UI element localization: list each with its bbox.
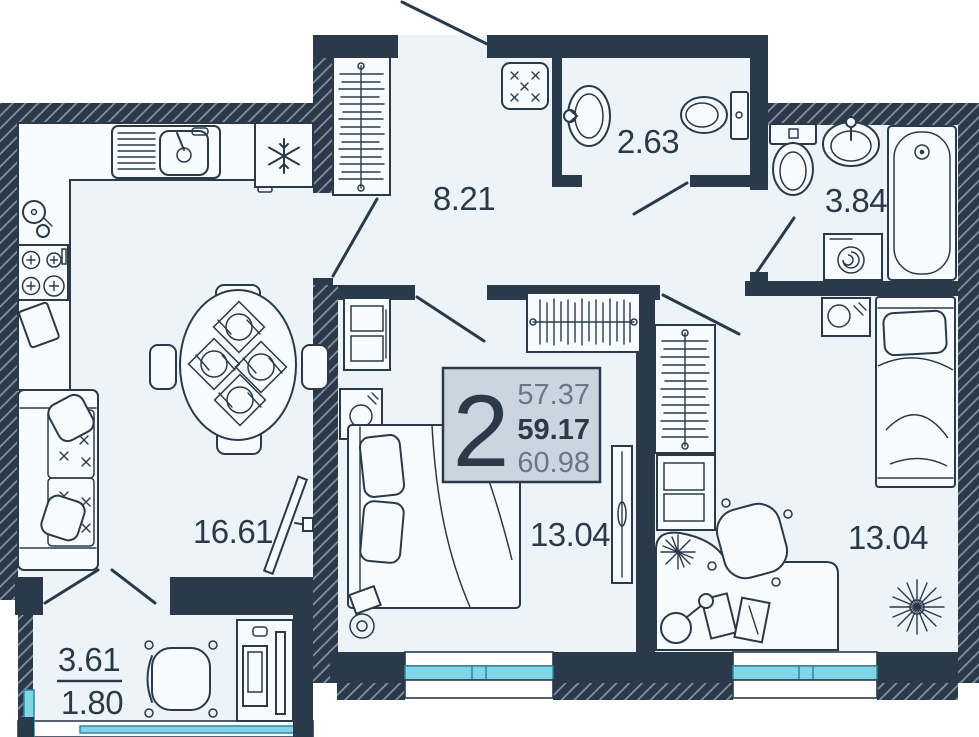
wall-left-outer [0,103,18,600]
unit-rooms-count: 2 [453,374,510,488]
bedroom2-wardrobe [655,325,715,453]
pillow [359,434,405,498]
wall-top-right-of-entry [487,35,768,58]
pillow [359,500,404,563]
label-wc-area: 2.63 [617,123,679,160]
bath-toilet-icon [770,124,816,195]
label-hallway-area: 8.21 [433,180,495,217]
pillow [883,310,947,355]
wall-right-outer [958,103,979,683]
stove-icon [18,245,68,300]
pouf-icon [502,63,548,109]
label-balcony-full: 3.61 [58,641,120,678]
label-bedroom1-area: 13.04 [530,516,610,553]
bathtub-icon [888,126,956,280]
label-balcony-reduced: 1.80 [61,684,123,721]
bedroom1-dresser [344,298,390,370]
standing-mirror [612,446,632,583]
unit-area-total: 59.17 [517,414,590,446]
bedroom1-wardrobe [527,293,640,352]
washing-machine-icon [824,234,882,280]
kitchen-sink [112,126,220,178]
wall-top-left-of-entry [313,35,398,58]
label-bathroom-area: 3.84 [825,182,887,219]
floor-plan-svg: 8.21 2.63 3.84 16.61 13.04 13.04 3.61 1.… [0,0,979,737]
wall-balcony-right [293,600,313,737]
window-bedroom-2 [733,652,877,698]
balcony-desk-computer [237,620,293,721]
bedroom2-nightstand-mirror [822,298,870,336]
dining-chair [302,345,328,389]
floor-plan-page: 8.21 2.63 3.84 16.61 13.04 13.04 3.61 1.… [0,0,979,737]
wall-kitchen-top [0,103,330,125]
wall-wc-bath-divider [750,58,768,190]
label-bedroom2-area: 13.04 [848,519,928,556]
sofa [18,390,98,570]
floor-plant-icon [890,580,944,634]
window-bedroom-1 [405,652,553,698]
unit-info-card: 2 57.37 59.17 60.98 [443,368,600,488]
floor-corridor [552,187,750,285]
unit-area-living: 57.37 [517,379,590,411]
wall-bathroom-top [768,103,958,125]
single-bed [876,297,955,487]
dining-chair [150,345,176,389]
label-balcony-areas: 3.61 1.80 [57,641,123,721]
hallway-wardrobe [333,57,390,195]
fridge-icon [255,123,313,192]
label-kitchen-living-area: 16.61 [193,513,273,550]
wall-bathroom-bottom [745,281,958,296]
unit-area-total-with-summer: 60.98 [517,447,590,479]
wall-living-bottom [170,577,313,615]
desk-plant-icon [661,535,695,569]
wall-wc-left [552,58,562,187]
wall-entry-niche [313,35,333,193]
bedroom2-dresser [657,455,715,530]
